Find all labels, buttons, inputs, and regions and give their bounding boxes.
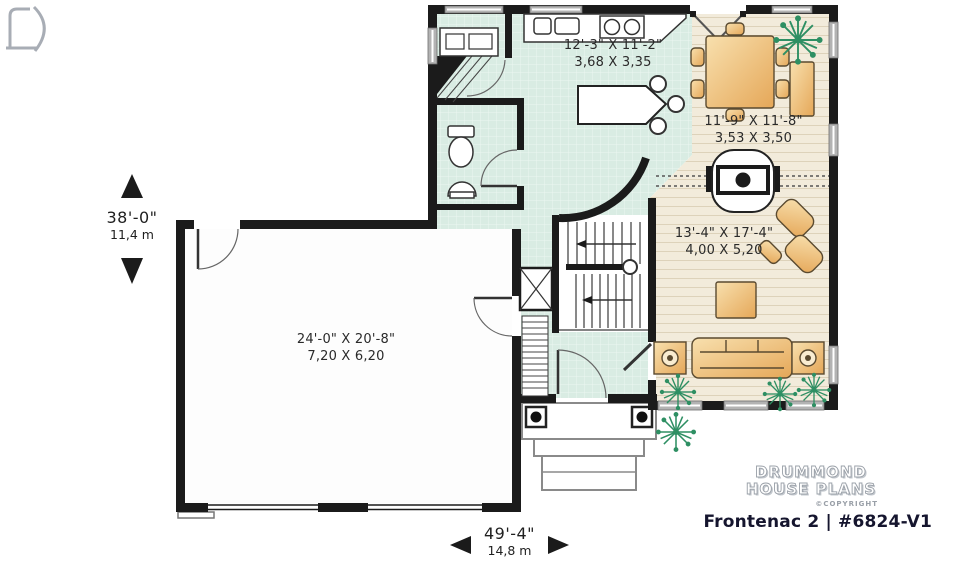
living-dimensions-label: 13'-4" X 17'-4" 4,00 X 5,20 — [664, 226, 784, 260]
porch-step-2 — [542, 456, 636, 490]
island-stool — [650, 118, 666, 134]
island-stool — [650, 76, 666, 92]
logo-line2: HOUSE PLANS — [742, 481, 880, 498]
width-imperial: 49'-4" — [471, 524, 548, 543]
dining-chair — [776, 80, 789, 98]
kitchen-dimensions-label: 12'-3" X 11'-2" 3,68 X 3,35 — [548, 38, 678, 72]
kitchen-island — [578, 86, 666, 124]
depth-metric: 11,4 m — [86, 227, 178, 242]
dining-imperial: 11'-9" X 11'-8" — [696, 114, 811, 131]
end-table-lamp — [792, 342, 824, 374]
buffet — [790, 62, 814, 116]
plan-title: Frontenac 2 | #6824-V1 — [690, 512, 932, 532]
dining-chair — [726, 23, 744, 35]
dining-dimensions-label: 11'-9" X 11'-8" 3,53 X 3,50 — [696, 114, 811, 148]
living-imperial: 13'-4" X 17'-4" — [664, 226, 784, 243]
porch-column-left — [526, 407, 546, 427]
island-stool — [668, 96, 684, 112]
logo-copyright: ©COPYRIGHT — [742, 500, 880, 508]
stair-newel — [623, 260, 637, 274]
garage-metric: 7,20 X 6,20 — [280, 349, 412, 366]
french-door-gap — [690, 5, 746, 14]
laundry-units — [440, 28, 498, 56]
basement-stairs — [522, 316, 548, 396]
arrow-right-icon — [548, 536, 569, 554]
ottoman-table — [716, 282, 756, 318]
arrow-left-icon — [450, 536, 471, 554]
toilet-bowl — [449, 137, 473, 167]
drummond-logo: DRUMMOND HOUSE PLANS ©COPYRIGHT — [742, 464, 880, 508]
cooktop — [600, 16, 644, 38]
floor-plan-page: 12'-3" X 11'-2" 3,68 X 3,35 11'-9" X 11'… — [0, 0, 960, 569]
garage-entry-gap — [194, 220, 240, 229]
dining-chair — [691, 80, 704, 98]
depth-imperial: 38'-0" — [86, 208, 178, 227]
door-logo-icon — [0, 0, 54, 54]
logo-line1: DRUMMOND — [742, 464, 880, 481]
dining-table — [706, 36, 774, 108]
width-metric: 14,8 m — [471, 543, 548, 558]
kitchen-metric: 3,68 X 3,35 — [548, 55, 678, 72]
toilet-tank — [448, 126, 474, 137]
garage-floor — [185, 229, 512, 503]
closet-shelves — [520, 268, 552, 310]
plant-entry — [657, 413, 696, 452]
arrow-down-icon — [121, 258, 143, 284]
kitchen-imperial: 12'-3" X 11'-2" — [548, 38, 678, 55]
garage-dimensions-label: 24'-0" X 20'-8" 7,20 X 6,20 — [280, 332, 412, 366]
sofa — [692, 338, 792, 378]
arrow-up-icon — [121, 174, 143, 198]
porch-step-1 — [534, 439, 644, 456]
overall-depth-dimension: 38'-0" 11,4 m — [86, 208, 178, 242]
garage-stoop — [178, 512, 214, 518]
dining-metric: 3,53 X 3,50 — [696, 131, 811, 148]
overall-width-dimension: 49'-4" 14,8 m — [471, 524, 548, 558]
living-metric: 4,00 X 5,20 — [664, 243, 784, 260]
end-table-lamp — [654, 342, 686, 374]
porch — [522, 403, 656, 490]
garage-imperial: 24'-0" X 20'-8" — [280, 332, 412, 349]
kitchen-sink — [534, 18, 551, 34]
dining-chair — [691, 48, 704, 66]
